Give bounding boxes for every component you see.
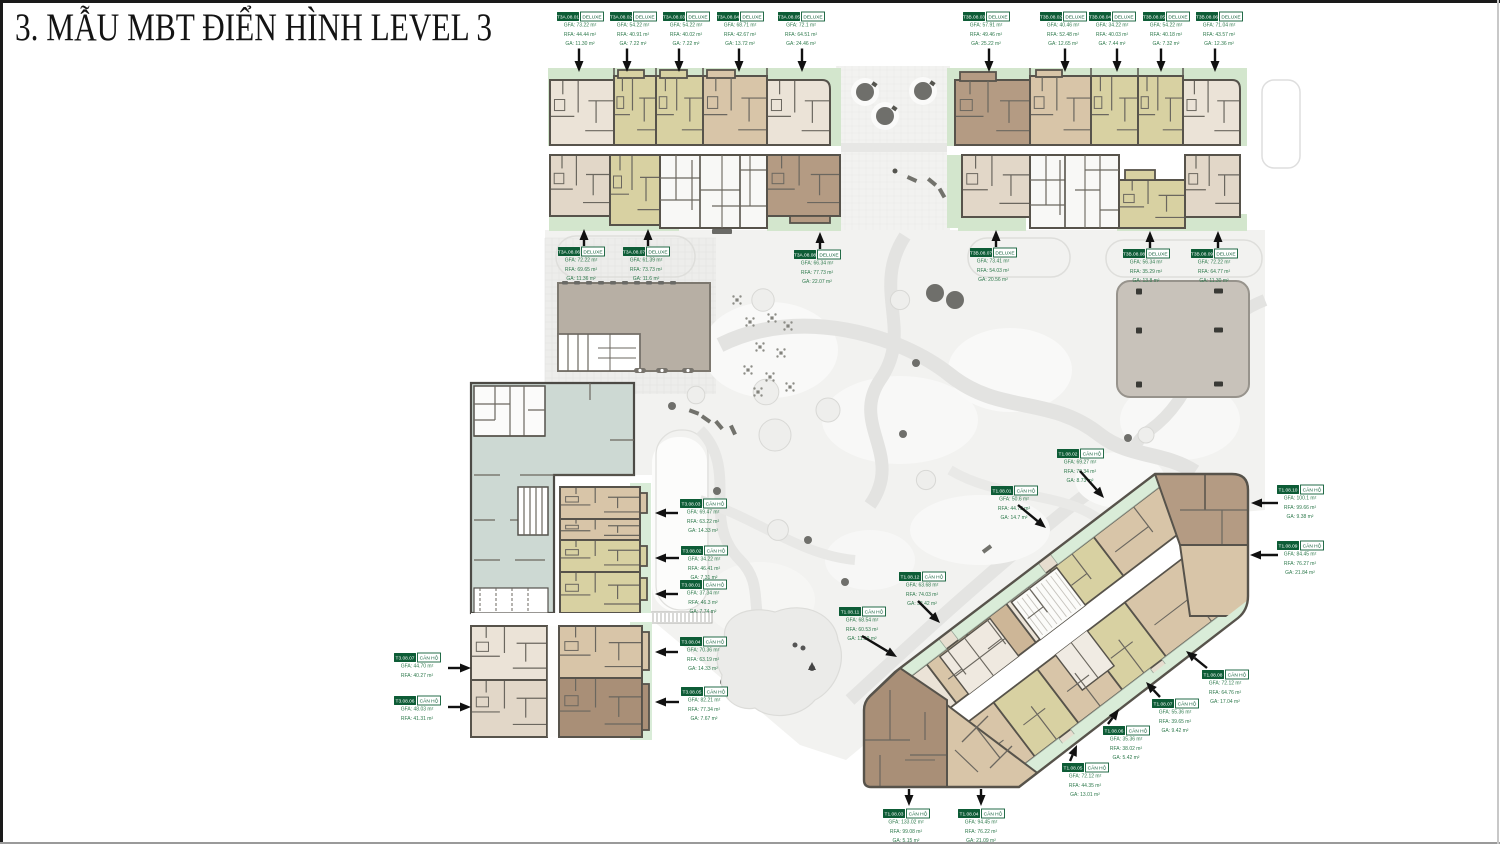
svg-text:T1.08.11: T1.08.11 — [841, 610, 860, 616]
svg-text:RFA: 76.22 m²: RFA: 76.22 m² — [965, 829, 998, 835]
svg-text:CĂN HỘ: CĂN HỘ — [420, 698, 439, 705]
svg-text:GFA: 69.27 m²: GFA: 69.27 m² — [1064, 460, 1097, 466]
svg-text:RFA: 38.02 m²: RFA: 38.02 m² — [1110, 746, 1143, 752]
svg-text:CĂN HỘ: CĂN HỘ — [420, 655, 439, 662]
svg-text:GA: 9.42 m²: GA: 9.42 m² — [1162, 728, 1189, 734]
svg-text:CĂN HỘ: CĂN HỘ — [706, 582, 725, 589]
svg-text:T1.08.05: T1.08.05 — [1064, 766, 1083, 772]
svg-text:T3B.08.05: T3B.08.05 — [1143, 15, 1165, 21]
svg-text:GA: 7.67 m²: GA: 7.67 m² — [691, 716, 718, 722]
svg-text:T1.08.03: T1.08.03 — [885, 812, 904, 818]
svg-text:GFA: 133.02 m²: GFA: 133.02 m² — [888, 820, 924, 826]
svg-text:GA: 24.46 m²: GA: 24.46 m² — [786, 41, 816, 47]
svg-text:GFA: 55.36 m²: GFA: 55.36 m² — [1159, 710, 1192, 716]
svg-text:T1.08.06: T1.08.06 — [1105, 729, 1124, 735]
svg-text:GFA: 72.12 m²: GFA: 72.12 m² — [1069, 774, 1102, 780]
svg-text:GA: 7.74 m²: GA: 7.74 m² — [690, 609, 717, 615]
svg-text:T3B.08.07: T3B.08.07 — [970, 251, 992, 257]
svg-text:T3.08.03: T3.08.03 — [682, 502, 701, 508]
svg-text:RFA: 69.65 m²: RFA: 69.65 m² — [565, 267, 598, 273]
svg-text:RFA: 64.77 m²: RFA: 64.77 m² — [1198, 269, 1231, 275]
svg-text:GFA: 84.45 m²: GFA: 84.45 m² — [1284, 552, 1317, 558]
svg-text:CĂN HỘ: CĂN HỘ — [1129, 728, 1148, 735]
svg-text:GA: 20.56 m²: GA: 20.56 m² — [978, 277, 1008, 283]
svg-text:CĂN HỘ: CĂN HỘ — [706, 639, 725, 646]
svg-text:T3.08.05: T3.08.05 — [683, 690, 702, 696]
svg-text:GFA: 72.1 m²: GFA: 72.1 m² — [786, 23, 816, 29]
svg-text:GA: 7.22 m²: GA: 7.22 m² — [620, 41, 647, 47]
svg-text:GFA: 34.22 m²: GFA: 34.22 m² — [688, 557, 721, 563]
svg-text:GA: 5.42 m²: GA: 5.42 m² — [1113, 755, 1140, 761]
svg-text:RFA: 35.29 m²: RFA: 35.29 m² — [1130, 269, 1163, 275]
svg-text:RFA: 99.66 m²: RFA: 99.66 m² — [1284, 505, 1317, 511]
svg-text:DELUXE: DELUXE — [742, 15, 761, 21]
svg-text:CĂN HỘ: CĂN HỘ — [984, 811, 1003, 818]
svg-text:GFA: 63.68 m²: GFA: 63.68 m² — [906, 583, 939, 589]
svg-text:GA: 11.36 m²: GA: 11.36 m² — [566, 276, 596, 282]
svg-text:DELUXE: DELUXE — [1114, 15, 1133, 21]
svg-text:RFA: 46.3 m²: RFA: 46.3 m² — [688, 600, 718, 606]
svg-text:GA: 14.33 m²: GA: 14.33 m² — [688, 666, 718, 672]
svg-text:CĂN HỘ: CĂN HỘ — [1228, 672, 1247, 679]
svg-text:RFA: 39.65 m²: RFA: 39.65 m² — [1159, 719, 1192, 725]
svg-text:GA: 22.07 m²: GA: 22.07 m² — [802, 279, 832, 285]
svg-text:DELUXE: DELUXE — [803, 15, 822, 21]
svg-text:GFA: 54.22 m²: GFA: 54.22 m² — [670, 23, 703, 29]
svg-text:GFA: 35.36 m²: GFA: 35.36 m² — [1110, 737, 1143, 743]
svg-text:RFA: 76.27 m²: RFA: 76.27 m² — [1284, 561, 1317, 567]
svg-text:DELUXE: DELUXE — [819, 253, 838, 259]
svg-text:CĂN HỘ: CĂN HỘ — [925, 574, 944, 581]
svg-text:T3.08.02: T3.08.02 — [683, 549, 702, 555]
svg-text:T1.08.07: T1.08.07 — [1154, 702, 1173, 708]
svg-text:GFA: 72.22 m²: GFA: 72.22 m² — [565, 258, 598, 264]
svg-text:DELUXE: DELUXE — [583, 250, 602, 256]
svg-text:GFA: 54.22 m²: GFA: 54.22 m² — [1150, 23, 1183, 29]
svg-text:3. MẪU MBT ĐIỂN HÌNH LEVEL 3: 3. MẪU MBT ĐIỂN HÌNH LEVEL 3 — [15, 4, 492, 49]
svg-text:CĂN HỘ: CĂN HỘ — [1017, 488, 1036, 495]
svg-text:GFA: 72.22 m²: GFA: 72.22 m² — [1198, 260, 1231, 266]
svg-text:RFA: 41.31 m²: RFA: 41.31 m² — [401, 716, 434, 722]
svg-text:GFA: 94.45 m²: GFA: 94.45 m² — [965, 820, 998, 826]
svg-text:RFA: 74.03 m²: RFA: 74.03 m² — [906, 592, 939, 598]
svg-text:T1.08.01: T1.08.01 — [993, 489, 1012, 495]
svg-text:RFA: 60.53 m²: RFA: 60.53 m² — [846, 627, 879, 633]
svg-text:T3A.08.05: T3A.08.05 — [778, 15, 800, 21]
svg-text:GFA: 44.70 m²: GFA: 44.70 m² — [401, 664, 434, 670]
svg-text:T3B.08.04: T3B.08.04 — [1089, 15, 1111, 21]
svg-text:T3.08.07: T3.08.07 — [396, 656, 415, 662]
svg-text:T3B.08.06: T3B.08.06 — [1196, 15, 1218, 21]
svg-text:GFA: 56.34 m²: GFA: 56.34 m² — [1130, 260, 1163, 266]
svg-text:RFA: 73.73 m²: RFA: 73.73 m² — [630, 267, 663, 273]
svg-text:RFA: 99.08 m²: RFA: 99.08 m² — [890, 829, 923, 835]
svg-text:GA: 7.32 m²: GA: 7.32 m² — [1153, 41, 1180, 47]
svg-text:GFA: 68.71 m²: GFA: 68.71 m² — [724, 23, 757, 29]
svg-text:RFA: 40.91 m²: RFA: 40.91 m² — [617, 32, 650, 38]
svg-text:GFA: 70.36 m²: GFA: 70.36 m² — [687, 648, 720, 654]
svg-text:T3A.08.02: T3A.08.02 — [610, 15, 632, 21]
svg-text:RFA: 64.76 m²: RFA: 64.76 m² — [1209, 690, 1242, 696]
svg-text:T1.08.09: T1.08.09 — [1279, 544, 1298, 550]
svg-text:DELUXE: DELUXE — [635, 15, 654, 21]
svg-text:DELUXE: DELUXE — [1148, 252, 1167, 258]
svg-text:RFA: 54.03 m²: RFA: 54.03 m² — [977, 268, 1010, 274]
svg-text:RFA: 77.34 m²: RFA: 77.34 m² — [688, 707, 721, 713]
svg-text:T1.08.10: T1.08.10 — [1279, 488, 1298, 494]
svg-text:DELUXE: DELUXE — [1221, 15, 1240, 21]
svg-text:DELUXE: DELUXE — [688, 15, 707, 21]
svg-text:DELUXE: DELUXE — [1216, 252, 1235, 258]
svg-text:T3A.08.06: T3A.08.06 — [558, 250, 580, 256]
svg-text:GFA: 69.47 m²: GFA: 69.47 m² — [687, 510, 720, 516]
svg-text:GFA: 37.34 m²: GFA: 37.34 m² — [687, 591, 720, 597]
svg-text:CĂN HỘ: CĂN HỘ — [707, 548, 726, 555]
svg-text:T3B.08.08: T3B.08.08 — [1123, 252, 1145, 258]
svg-text:T3B.08.02: T3B.08.02 — [1040, 15, 1062, 21]
svg-text:GA: 17.04 m²: GA: 17.04 m² — [1210, 699, 1240, 705]
svg-text:GFA: 100.1 m²: GFA: 100.1 m² — [1284, 496, 1317, 502]
svg-text:GA: 13.72 m²: GA: 13.72 m² — [725, 41, 755, 47]
svg-text:CĂN HỘ: CĂN HỘ — [1303, 487, 1322, 494]
svg-text:RFA: 44.44 m²: RFA: 44.44 m² — [564, 32, 597, 38]
svg-text:GA: 7.44 m²: GA: 7.44 m² — [1099, 41, 1126, 47]
svg-text:RFA: 44.35 m²: RFA: 44.35 m² — [1069, 783, 1102, 789]
svg-text:GA: 11.30 m²: GA: 11.30 m² — [565, 41, 595, 47]
svg-text:CĂN HỘ: CĂN HỘ — [865, 609, 884, 616]
svg-text:T3B.08.09: T3B.08.09 — [1191, 252, 1213, 258]
svg-text:GFA: 40.46 m²: GFA: 40.46 m² — [1047, 23, 1080, 29]
svg-text:GA: 21.84 m²: GA: 21.84 m² — [1285, 570, 1315, 576]
svg-text:T1.08.04: T1.08.04 — [960, 812, 979, 818]
svg-text:GFA: 72.12 m²: GFA: 72.12 m² — [1209, 681, 1242, 687]
svg-text:GFA: 68.54 m²: GFA: 68.54 m² — [846, 618, 879, 624]
svg-text:CĂN HỘ: CĂN HỘ — [1178, 701, 1197, 708]
svg-text:GA: 21.09 m²: GA: 21.09 m² — [966, 838, 996, 844]
svg-text:DELUXE: DELUXE — [988, 15, 1007, 21]
svg-text:RFA: 40.02 m²: RFA: 40.02 m² — [670, 32, 703, 38]
svg-text:GFA: 73.22 m²: GFA: 73.22 m² — [564, 23, 597, 29]
svg-text:T1.08.08: T1.08.08 — [1204, 673, 1223, 679]
svg-text:DELUXE: DELUXE — [1168, 15, 1187, 21]
svg-text:GA: 14.7 m²: GA: 14.7 m² — [1001, 515, 1028, 521]
svg-text:CĂN HỘ: CĂN HỘ — [707, 689, 726, 696]
svg-text:RFA: 42.67 m²: RFA: 42.67 m² — [724, 32, 757, 38]
svg-text:CĂN HỘ: CĂN HỘ — [1088, 765, 1107, 772]
svg-text:RFA: 52.48 m²: RFA: 52.48 m² — [1047, 32, 1080, 38]
svg-text:RFA: 63.19 m²: RFA: 63.19 m² — [687, 657, 720, 663]
svg-text:GA: 12.36 m²: GA: 12.36 m² — [1204, 41, 1234, 47]
svg-text:GA: 5.15 m²: GA: 5.15 m² — [893, 838, 920, 844]
svg-text:CĂN HỘ: CĂN HỘ — [909, 811, 928, 818]
svg-text:GA: 14.33 m²: GA: 14.33 m² — [688, 528, 718, 534]
svg-text:T3A.08.07: T3A.08.07 — [623, 250, 645, 256]
svg-text:T3.08.06: T3.08.06 — [396, 699, 415, 705]
svg-text:DELUXE: DELUXE — [582, 15, 601, 21]
svg-text:GFA: 48.03 m²: GFA: 48.03 m² — [401, 707, 434, 713]
svg-text:DELUXE: DELUXE — [995, 251, 1014, 257]
svg-text:GFA: 82.21 m²: GFA: 82.21 m² — [688, 698, 721, 704]
svg-text:GFA: 54.22 m²: GFA: 54.22 m² — [617, 23, 650, 29]
svg-text:RFA: 64.51 m²: RFA: 64.51 m² — [785, 32, 818, 38]
svg-text:GFA: 73.41 m²: GFA: 73.41 m² — [977, 259, 1010, 265]
svg-text:T3.08.04: T3.08.04 — [682, 640, 701, 646]
svg-text:T1.08.12: T1.08.12 — [901, 575, 920, 581]
svg-text:DELUXE: DELUXE — [648, 250, 667, 256]
svg-text:T3A.08.03: T3A.08.03 — [663, 15, 685, 21]
svg-text:T3A.08.01: T3A.08.01 — [557, 15, 579, 21]
svg-text:GA: 9.38 m²: GA: 9.38 m² — [1287, 514, 1314, 520]
svg-text:T3.08.01: T3.08.01 — [682, 583, 701, 589]
svg-text:RFA: 46.41 m²: RFA: 46.41 m² — [688, 566, 721, 572]
svg-text:CĂN HỘ: CĂN HỘ — [1303, 543, 1322, 550]
svg-text:GA: 11.30 m²: GA: 11.30 m² — [1199, 278, 1229, 284]
svg-text:T3A.08.04: T3A.08.04 — [717, 15, 739, 21]
svg-text:GA: 13.01 m²: GA: 13.01 m² — [1070, 792, 1100, 798]
svg-text:T1.08.02: T1.08.02 — [1059, 452, 1078, 458]
svg-text:GA: 7.22 m²: GA: 7.22 m² — [673, 41, 700, 47]
svg-text:CĂN HỘ: CĂN HỘ — [1083, 451, 1102, 458]
svg-text:GA: 25.22 m²: GA: 25.22 m² — [971, 41, 1001, 47]
svg-text:T3B.08.03: T3B.08.03 — [963, 15, 985, 21]
svg-text:CĂN HỘ: CĂN HỘ — [706, 501, 725, 508]
svg-text:GA: 11.6 m²: GA: 11.6 m² — [633, 276, 660, 282]
svg-text:RFA: 40.27 m²: RFA: 40.27 m² — [401, 673, 434, 679]
svg-text:GFA: 61.39 m²: GFA: 61.39 m² — [630, 258, 663, 264]
svg-text:GFA: 57.91 m²: GFA: 57.91 m² — [970, 23, 1003, 29]
svg-text:RFA: 40.03 m²: RFA: 40.03 m² — [1096, 32, 1129, 38]
svg-text:RFA: 43.57 m²: RFA: 43.57 m² — [1203, 32, 1236, 38]
svg-text:RFA: 40.18 m²: RFA: 40.18 m² — [1150, 32, 1183, 38]
svg-text:T3A.08.08: T3A.08.08 — [794, 253, 816, 259]
svg-text:GFA: 50.6 m²: GFA: 50.6 m² — [999, 497, 1029, 503]
svg-text:DELUXE: DELUXE — [1065, 15, 1084, 21]
svg-text:RFA: 63.22 m²: RFA: 63.22 m² — [687, 519, 720, 525]
svg-text:GFA: 71.04 m²: GFA: 71.04 m² — [1203, 23, 1236, 29]
svg-text:GA: 12.65 m²: GA: 12.65 m² — [1048, 41, 1078, 47]
svg-text:GFA: 66.34 m²: GFA: 66.34 m² — [801, 261, 834, 267]
svg-text:RFA: 77.73 m²: RFA: 77.73 m² — [801, 270, 834, 276]
svg-text:GA: 13.8 m²: GA: 13.8 m² — [1133, 278, 1160, 284]
svg-text:GFA: 34.22 m²: GFA: 34.22 m² — [1096, 23, 1129, 29]
svg-text:RFA: 49.46 m²: RFA: 49.46 m² — [970, 32, 1003, 38]
